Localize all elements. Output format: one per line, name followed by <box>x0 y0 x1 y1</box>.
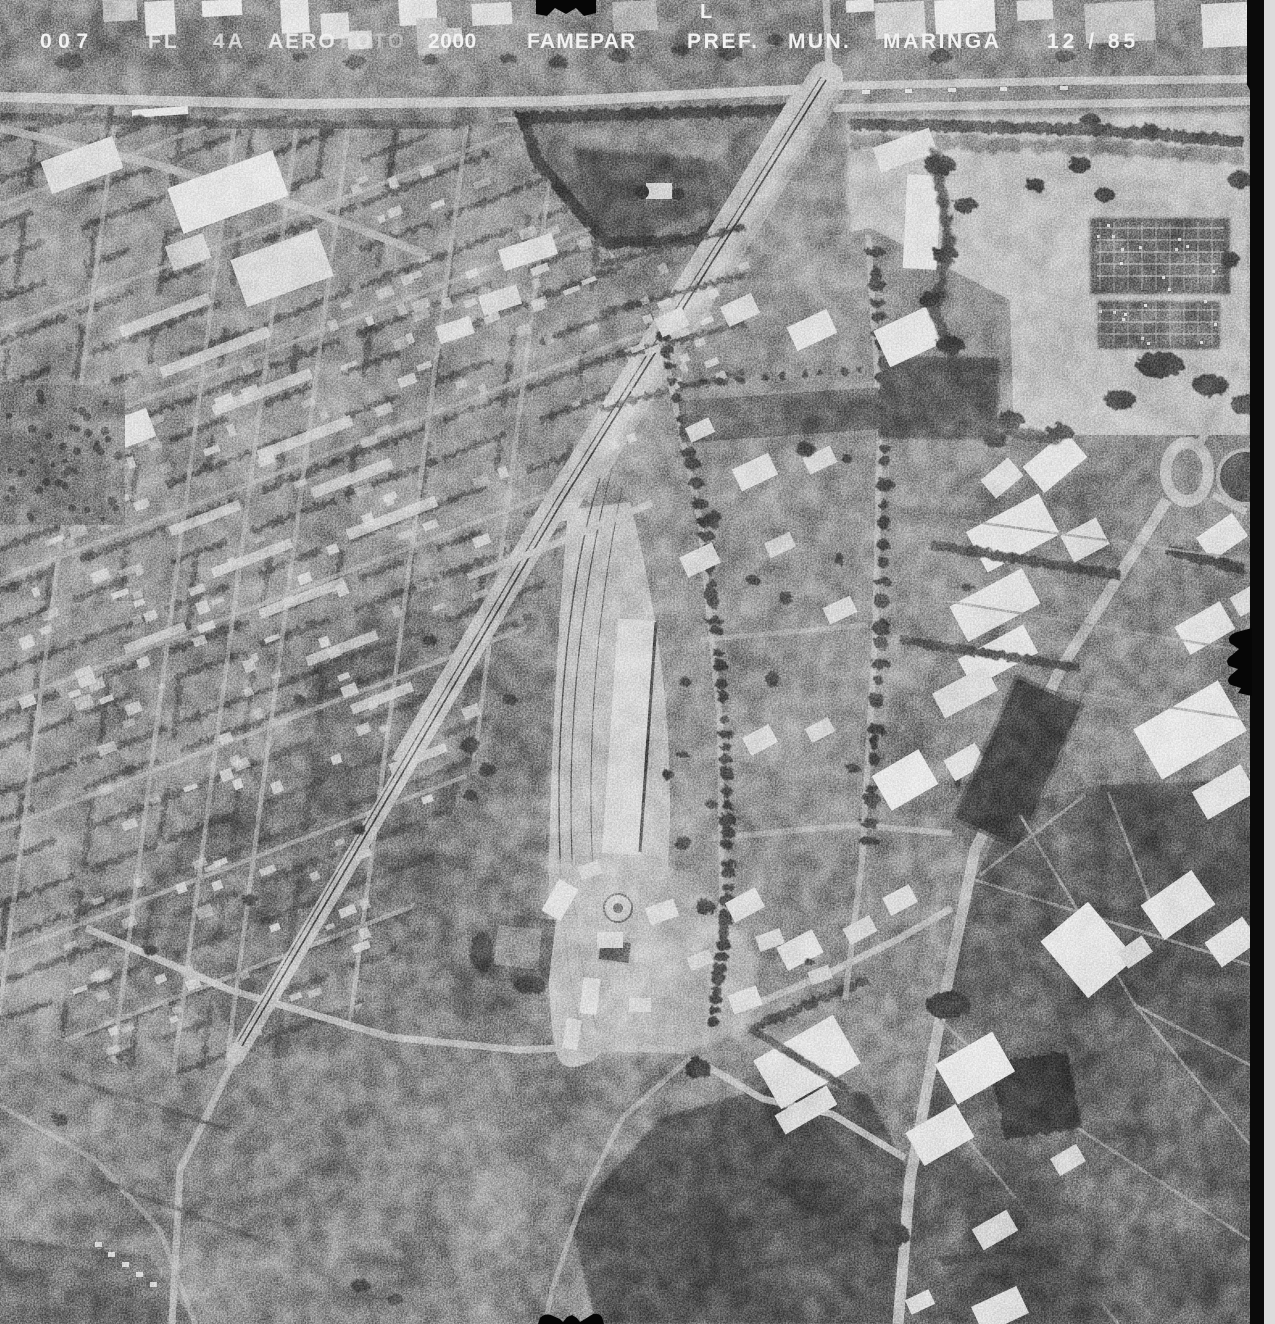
svg-text:2000: 2000 <box>428 30 477 53</box>
svg-text:007: 007 <box>40 30 95 53</box>
svg-text:FAMEPAR: FAMEPAR <box>527 30 637 53</box>
svg-text:MARINGA: MARINGA <box>883 30 1002 53</box>
svg-text:FOTO: FOTO <box>340 30 406 53</box>
svg-text:L: L <box>700 1 712 23</box>
svg-text:FL: FL <box>148 30 180 53</box>
svg-text:4A: 4A <box>213 30 246 53</box>
svg-text:12 / 85: 12 / 85 <box>1047 30 1139 53</box>
svg-text:PREF.: PREF. <box>687 30 760 53</box>
svg-text:MUN.: MUN. <box>788 30 851 53</box>
svg-text:AERO: AERO <box>268 30 337 53</box>
